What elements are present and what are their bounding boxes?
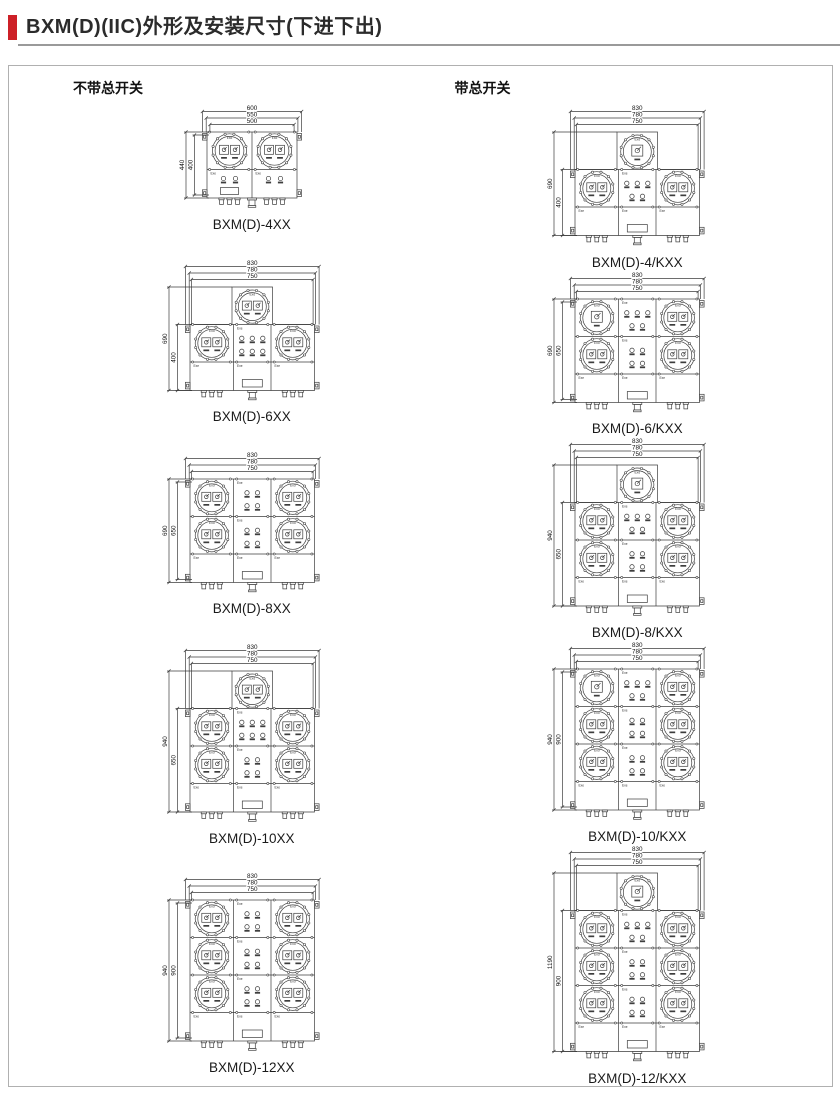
svg-text:650: 650 — [556, 345, 563, 356]
svg-text:Exe: Exe — [660, 209, 666, 213]
svg-text:Exd: Exd — [209, 521, 215, 525]
svg-text:940: 940 — [547, 734, 554, 745]
svg-text:Exe: Exe — [255, 172, 261, 176]
svg-text:Exd: Exd — [594, 674, 600, 678]
svg-text:400: 400 — [556, 197, 563, 208]
figure-caption: BXM(D)-6XX — [156, 409, 327, 425]
svg-text:Exe: Exe — [622, 172, 628, 176]
column-with-main-switch: 带总开关ExdExdExdExeExeExeExe830780750690400… — [421, 78, 833, 1086]
svg-text:Exe: Exe — [210, 172, 216, 176]
svg-text:Exd: Exd — [290, 483, 296, 487]
svg-text:750: 750 — [247, 886, 258, 893]
svg-text:Exe: Exe — [622, 784, 628, 788]
figure-list: ExdExdExeExe600550500440400BXM(D)-4XXExd… — [9, 102, 421, 1086]
svg-text:Exe: Exe — [660, 580, 666, 584]
svg-text:Exe: Exe — [237, 1015, 243, 1019]
svg-text:650: 650 — [556, 549, 563, 560]
svg-text:750: 750 — [632, 451, 643, 458]
svg-text:750: 750 — [247, 657, 258, 664]
svg-text:650: 650 — [170, 754, 177, 765]
figure: ExdExdExeExdExdExeExdExdExeExeExeExe8307… — [541, 641, 712, 845]
svg-text:Exd: Exd — [675, 749, 681, 753]
svg-text:Exe: Exe — [237, 940, 243, 944]
svg-text:Exe: Exe — [237, 785, 243, 789]
svg-text:Exd: Exd — [594, 174, 600, 178]
figure: ExdExdExeExdExdExeExeExeExe8307807506906… — [541, 271, 712, 438]
svg-text:Exe: Exe — [622, 1025, 628, 1029]
svg-text:Exe: Exe — [622, 505, 628, 509]
svg-text:Exe: Exe — [622, 913, 628, 917]
column-heading: 带总开关 — [455, 78, 833, 98]
svg-text:690: 690 — [162, 333, 169, 344]
svg-text:940: 940 — [547, 530, 554, 541]
svg-text:Exd: Exd — [594, 711, 600, 715]
svg-text:Exe: Exe — [622, 709, 628, 713]
svg-text:900: 900 — [170, 965, 177, 976]
figure: ExdExdExdExeExdExdExeExdExdExeExeExeExe8… — [541, 845, 712, 1087]
svg-text:Exd: Exd — [594, 507, 600, 511]
svg-text:Exe: Exe — [622, 671, 628, 675]
figure: ExdExdExeExe600550500440400BXM(D)-4XX — [173, 104, 309, 233]
svg-text:Exe: Exe — [274, 785, 280, 789]
figure-drawing: ExdExdExdExeExeExeExe830780750690400 — [156, 259, 327, 409]
svg-text:750: 750 — [247, 465, 258, 472]
figure-caption: BXM(D)-8XX — [156, 601, 327, 617]
figure-caption: BXM(D)-10XX — [156, 831, 327, 847]
svg-text:Exe: Exe — [237, 977, 243, 981]
svg-text:Exd: Exd — [290, 980, 296, 984]
svg-text:Exe: Exe — [274, 556, 280, 560]
svg-text:Exd: Exd — [594, 915, 600, 919]
figure-drawing: ExdExdExeExdExdExeExdExdExeExeExeExe8307… — [541, 641, 712, 828]
svg-text:Exe: Exe — [193, 364, 199, 368]
svg-text:Exe: Exe — [193, 1015, 199, 1019]
svg-text:Exe: Exe — [237, 556, 243, 560]
svg-text:Exe: Exe — [622, 746, 628, 750]
svg-text:500: 500 — [246, 118, 257, 125]
svg-text:690: 690 — [162, 525, 169, 536]
svg-text:Exd: Exd — [209, 905, 215, 909]
svg-text:750: 750 — [632, 118, 643, 125]
svg-text:900: 900 — [556, 975, 563, 986]
svg-text:Exe: Exe — [622, 988, 628, 992]
svg-text:Exe: Exe — [579, 376, 585, 380]
svg-text:Exd: Exd — [675, 303, 681, 307]
svg-text:Exd: Exd — [635, 470, 641, 474]
svg-text:Exd: Exd — [290, 713, 296, 717]
svg-text:Exd: Exd — [594, 990, 600, 994]
svg-text:Exd: Exd — [675, 507, 681, 511]
svg-text:Exd: Exd — [675, 545, 681, 549]
svg-text:Exd: Exd — [290, 750, 296, 754]
svg-text:750: 750 — [632, 655, 643, 662]
svg-text:Exe: Exe — [622, 542, 628, 546]
svg-text:Exe: Exe — [622, 950, 628, 954]
svg-text:Exd: Exd — [290, 942, 296, 946]
svg-text:1190: 1190 — [547, 955, 554, 969]
svg-text:Exe: Exe — [579, 209, 585, 213]
svg-text:Exd: Exd — [272, 136, 278, 140]
svg-text:Exe: Exe — [193, 556, 199, 560]
figure: ExdExdExeExdExdExeExdExdExeExeExeExe8307… — [156, 872, 327, 1076]
svg-text:Exd: Exd — [675, 674, 681, 678]
svg-text:Exe: Exe — [622, 338, 628, 342]
svg-text:650: 650 — [170, 525, 177, 536]
svg-text:750: 750 — [632, 859, 643, 866]
figure-caption: BXM(D)-4XX — [173, 217, 309, 233]
svg-text:Exe: Exe — [237, 364, 243, 368]
svg-text:750: 750 — [247, 273, 258, 280]
svg-text:400: 400 — [170, 351, 177, 362]
figure-caption: BXM(D)-10/KXX — [541, 829, 712, 845]
figure-drawing: ExdExdExeExdExdExeExdExdExeExeExeExe8307… — [156, 872, 327, 1059]
svg-text:Exd: Exd — [594, 303, 600, 307]
svg-text:Exd: Exd — [675, 990, 681, 994]
figure-caption: BXM(D)-8/KXX — [541, 625, 712, 641]
header-rule — [18, 44, 840, 46]
svg-text:Exd: Exd — [675, 953, 681, 957]
svg-text:Exd: Exd — [635, 137, 641, 141]
figure-drawing: ExdExdExeExe600550500440400 — [173, 104, 309, 216]
figure-drawing: ExdExdExeExdExdExeExeExeExe8307807506906… — [541, 271, 712, 421]
svg-text:750: 750 — [632, 285, 643, 292]
column-heading: 不带总开关 — [73, 78, 421, 98]
svg-text:900: 900 — [556, 734, 563, 745]
svg-text:Exe: Exe — [274, 364, 280, 368]
svg-text:Exe: Exe — [237, 481, 243, 485]
svg-text:Exd: Exd — [675, 711, 681, 715]
svg-text:Exe: Exe — [237, 710, 243, 714]
svg-text:Exd: Exd — [594, 545, 600, 549]
svg-text:Exd: Exd — [594, 749, 600, 753]
svg-text:Exd: Exd — [209, 329, 215, 333]
svg-text:Exe: Exe — [237, 518, 243, 522]
svg-text:Exe: Exe — [622, 580, 628, 584]
svg-text:Exe: Exe — [237, 902, 243, 906]
svg-text:Exe: Exe — [237, 748, 243, 752]
svg-text:Exd: Exd — [249, 676, 255, 680]
svg-text:Exe: Exe — [622, 376, 628, 380]
svg-text:940: 940 — [162, 735, 169, 746]
svg-text:Exe: Exe — [660, 784, 666, 788]
svg-text:Exd: Exd — [209, 713, 215, 717]
figure-drawing: ExdExdExdExeExdExdExeExeExeExe8307807509… — [541, 437, 712, 624]
svg-text:Exe: Exe — [622, 301, 628, 305]
page-title: BXM(D)(IIC)外形及安装尺寸(下进下出) — [26, 14, 382, 40]
svg-text:Exd: Exd — [635, 878, 641, 882]
svg-text:Exd: Exd — [249, 292, 255, 296]
figure-drawing: ExdExdExdExeExeExeExe830780750690400 — [541, 104, 712, 254]
page-header: BXM(D)(IIC)外形及安装尺寸(下进下出) — [0, 0, 840, 41]
figure-drawing: ExdExdExdExeExdExdExeExdExdExeExeExeExe8… — [541, 845, 712, 1070]
figure-drawing: ExdExdExeExdExdExeExeExeExe8307807506906… — [156, 451, 327, 601]
figure: ExdExdExdExeExeExeExe830780750690400BXM(… — [156, 259, 327, 426]
figure: ExdExdExdExeExeExeExe830780750690400BXM(… — [541, 104, 712, 271]
svg-text:690: 690 — [547, 345, 554, 356]
svg-text:Exd: Exd — [209, 483, 215, 487]
svg-text:Exe: Exe — [660, 376, 666, 380]
svg-text:Exe: Exe — [193, 785, 199, 789]
svg-text:Exe: Exe — [274, 1015, 280, 1019]
svg-text:Exd: Exd — [594, 341, 600, 345]
diagram-panel: 不带总开关ExdExdExeExe600550500440400BXM(D)-4… — [8, 65, 833, 1087]
column-without-main-switch: 不带总开关ExdExdExeExe600550500440400BXM(D)-4… — [9, 78, 421, 1086]
svg-text:Exe: Exe — [579, 1025, 585, 1029]
figure: ExdExdExdExeExdExdExeExeExeExe8307807509… — [156, 643, 327, 847]
svg-text:Exe: Exe — [622, 209, 628, 213]
svg-text:Exe: Exe — [660, 1025, 666, 1029]
svg-text:Exd: Exd — [290, 521, 296, 525]
figure-drawing: ExdExdExdExeExdExdExeExeExeExe8307807509… — [156, 643, 327, 830]
title-accent-bar — [8, 15, 17, 40]
svg-text:Exe: Exe — [579, 784, 585, 788]
svg-text:Exd: Exd — [675, 915, 681, 919]
svg-text:400: 400 — [187, 159, 194, 170]
svg-text:Exd: Exd — [594, 953, 600, 957]
svg-text:Exd: Exd — [675, 174, 681, 178]
figure-caption: BXM(D)-12/KXX — [541, 1071, 712, 1087]
svg-text:Exd: Exd — [675, 341, 681, 345]
figure: ExdExdExeExdExdExeExeExeExe8307807506906… — [156, 451, 327, 618]
figure: ExdExdExdExeExdExdExeExeExeExe8307807509… — [541, 437, 712, 641]
svg-text:Exd: Exd — [290, 329, 296, 333]
svg-text:Exe: Exe — [237, 326, 243, 330]
figure-list: ExdExdExdExeExeExeExe830780750690400BXM(… — [421, 102, 833, 1097]
figure-caption: BXM(D)-4/KXX — [541, 255, 712, 271]
svg-text:690: 690 — [547, 178, 554, 189]
svg-text:Exd: Exd — [290, 905, 296, 909]
svg-text:440: 440 — [179, 159, 186, 170]
figure-caption: BXM(D)-12XX — [156, 1060, 327, 1076]
figure-caption: BXM(D)-6/KXX — [541, 421, 712, 437]
svg-text:940: 940 — [162, 965, 169, 976]
svg-text:Exd: Exd — [209, 750, 215, 754]
svg-text:Exd: Exd — [209, 980, 215, 984]
svg-text:Exd: Exd — [227, 136, 233, 140]
svg-text:Exe: Exe — [579, 580, 585, 584]
svg-text:Exd: Exd — [209, 942, 215, 946]
